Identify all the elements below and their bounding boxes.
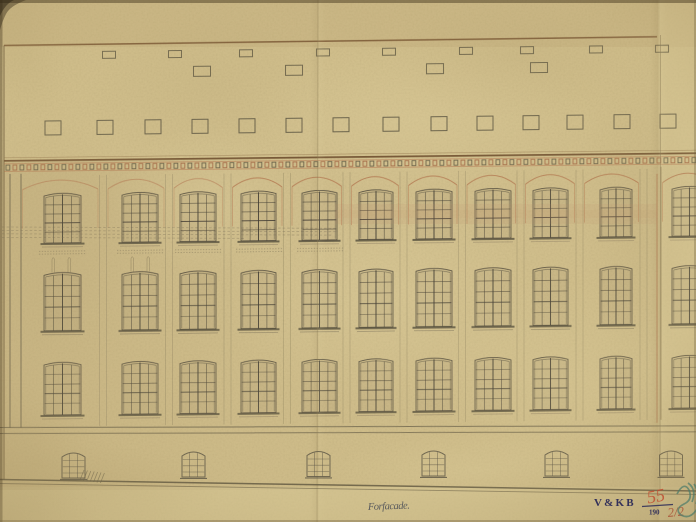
svg-text:190: 190 bbox=[649, 509, 660, 517]
svg-text:Forfacade.: Forfacade. bbox=[367, 501, 410, 513]
svg-text:2/2: 2/2 bbox=[667, 503, 686, 520]
svg-text:V&KB: V&KB bbox=[594, 497, 636, 509]
svg-text:55: 55 bbox=[645, 485, 666, 508]
